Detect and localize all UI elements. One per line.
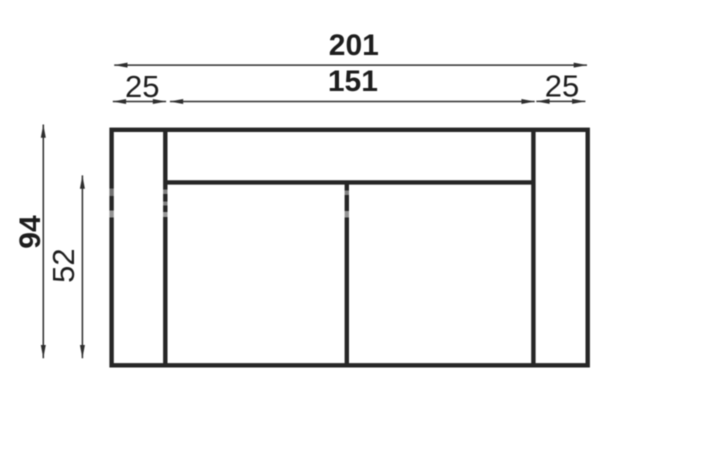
svg-text:94: 94 xyxy=(14,215,47,249)
svg-text:25: 25 xyxy=(545,69,579,104)
svg-text:151: 151 xyxy=(328,65,378,98)
svg-text:201: 201 xyxy=(329,29,379,62)
svg-text:25: 25 xyxy=(125,69,159,104)
svg-text:52: 52 xyxy=(46,248,81,282)
